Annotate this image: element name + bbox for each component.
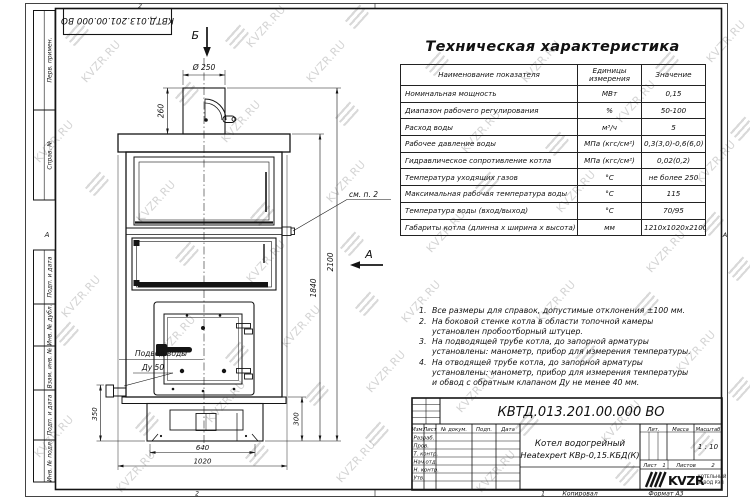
param-units: мм bbox=[578, 219, 642, 236]
param-units: % bbox=[578, 102, 642, 119]
dim-diameter: Ø 250 bbox=[192, 63, 216, 72]
param-value: не более 250 bbox=[642, 169, 706, 186]
note-number: 4. bbox=[419, 358, 428, 387]
left-margin-stamps: Перв. примен. Справ. № Подп. и дата Инв.… bbox=[34, 11, 56, 483]
notes-section: 1. Все размеры для справок, допустимые о… bbox=[419, 306, 691, 388]
note-item: 4. На отводящей трубе котла, до запорной… bbox=[419, 358, 691, 387]
param-value: 70/95 bbox=[642, 202, 706, 219]
view-label-b: Б bbox=[191, 29, 199, 42]
note-text: На подводящей трубе котла, до запорной а… bbox=[428, 337, 691, 357]
note-text: Все размеры для справок, допустимые откл… bbox=[428, 306, 691, 316]
top-doc-number-box: КВТД.013.201.00.000 ВО bbox=[61, 9, 174, 35]
doc-number: КВТД.013.201.00.000 ВО bbox=[497, 405, 664, 420]
dim-350: 350 bbox=[91, 407, 99, 421]
param-units: МВт bbox=[578, 86, 642, 103]
sheet-number: 1 bbox=[662, 463, 665, 469]
col-podp: Подп. bbox=[476, 427, 492, 433]
water-inlet-pipe bbox=[106, 385, 114, 397]
dim-2100: 2100 bbox=[326, 252, 335, 271]
stamp-podp-data-2: Подп. и дата bbox=[47, 394, 54, 435]
scale-label: Масштаб bbox=[696, 427, 721, 433]
table-row: Расход водым³/ч5 bbox=[401, 119, 706, 136]
note-item: 3. На подводящей трубе котла, до запорно… bbox=[419, 337, 691, 357]
param-value: 50-100 bbox=[642, 102, 706, 119]
param-name: Номинальная мощность bbox=[401, 86, 578, 103]
water-inlet-label-2: Ду 50 bbox=[141, 363, 164, 372]
mass-label: Масса bbox=[672, 427, 689, 433]
stamp-inv-podl: Инв. № подл. bbox=[47, 440, 54, 481]
table-row: Габариты котла (длинна х ширина х высота… bbox=[401, 219, 706, 236]
zone-mark-right: А bbox=[722, 231, 727, 239]
stamp-sprav-no: Справ. № bbox=[47, 140, 54, 169]
dim-1020: 1020 bbox=[194, 458, 212, 466]
view-label-a: А bbox=[364, 248, 373, 261]
table-row: Максимальная рабочая температура воды°С1… bbox=[401, 186, 706, 203]
table-row: Температура воды (вход/выход)°С70/95 bbox=[401, 202, 706, 219]
header-name: Наименование показателя bbox=[401, 65, 578, 86]
copied-label: Копировал bbox=[562, 491, 597, 498]
dim-300: 300 bbox=[293, 412, 301, 426]
kvzr-logo: KVZR КОТЕЛЬНЫЙ ЗАВОД РЭП bbox=[646, 472, 726, 488]
param-name: Температура воды (вход/выход) bbox=[401, 202, 578, 219]
format-label: Формат А3 bbox=[648, 491, 683, 498]
param-value: 0,02(0,2) bbox=[642, 152, 706, 169]
table-header-row: Наименование показателя Единицы измерени… bbox=[401, 65, 706, 86]
zone-mark-bottom-2: 1 bbox=[541, 491, 545, 498]
param-name: Рабочее давление воды bbox=[401, 136, 578, 153]
col-list: Лист bbox=[422, 427, 437, 433]
dim-640: 640 bbox=[196, 444, 210, 452]
param-name: Диапазон рабочего регулирования bbox=[401, 102, 578, 119]
table-row: Рабочее давление водыМПа (кгс/см²)0,3(3,… bbox=[401, 136, 706, 153]
stamp-vzam-inv: Взам. инв. № bbox=[47, 348, 54, 389]
param-units: МПа (кгс/см²) bbox=[578, 136, 642, 153]
table-row: Диапазон рабочего регулирования%50-100 bbox=[401, 102, 706, 119]
param-value: 0,3(3,0)-0,6(6,0) bbox=[642, 136, 706, 153]
scale-value: 1 : 10 bbox=[698, 443, 719, 451]
param-value: 0,15 bbox=[642, 86, 706, 103]
note-item: 2. На боковой стенке котла в области топ… bbox=[419, 317, 691, 337]
row-razrab: Разраб. bbox=[414, 435, 435, 441]
row-nachotd: Нач.отд. bbox=[414, 459, 438, 465]
sheets-label: Листов bbox=[675, 463, 696, 469]
note-number: 3. bbox=[419, 337, 428, 357]
spec-table: Наименование показателя Единицы измерени… bbox=[400, 64, 706, 236]
boiler-front-view bbox=[106, 58, 295, 448]
spec-section: Техническая характеристика Наименование … bbox=[400, 39, 705, 236]
param-name: Температура уходящих газов bbox=[401, 169, 578, 186]
dimensions: Ø 250 260 2100 1840 300 350 640 bbox=[91, 63, 341, 470]
callouts: Б А см. п. 2 Подвод воды Ду 50 bbox=[119, 27, 391, 386]
product-name-line1: Котел водогрейный bbox=[535, 439, 626, 449]
note-number: 1. bbox=[419, 306, 428, 316]
row-utv: Утв. bbox=[414, 475, 425, 481]
note-text: На отводящей трубе котла, до запорной ар… bbox=[428, 358, 691, 387]
header-units: Единицы измерения bbox=[578, 65, 642, 86]
param-value: 115 bbox=[642, 186, 706, 203]
spec-title: Техническая характеристика bbox=[400, 39, 705, 55]
product-name-line2: Heatexpert КВр-0,15.КБД(К) bbox=[520, 450, 639, 460]
col-dokum: № докум. bbox=[440, 427, 467, 433]
water-inlet-label-1: Подвод воды bbox=[135, 349, 187, 358]
param-name: Расход воды bbox=[401, 119, 578, 136]
param-name: Габариты котла (длинна х ширина х высота… bbox=[401, 219, 578, 236]
drawing-sheet: KVZR.RU KVZR.RU KVZR.RU KVZR.RU KVZR.RU … bbox=[0, 0, 750, 500]
dim-260: 260 bbox=[157, 104, 166, 119]
zone-mark-bottom: 2 bbox=[195, 491, 199, 498]
note-text: На боковой стенке котла в области топочн… bbox=[428, 317, 691, 337]
zone-mark-left: А bbox=[44, 231, 50, 239]
table-row: Номинальная мощностьМВт0,15 bbox=[401, 86, 706, 103]
title-block: КВТД.013.201.00.000 ВО Изм. Лист № докум… bbox=[412, 398, 727, 490]
row-prov: Пров. bbox=[414, 443, 429, 449]
kvzr-logo-sub2: ЗАВОД РЭП bbox=[698, 480, 724, 486]
param-units: °С bbox=[578, 186, 642, 203]
param-name: Максимальная рабочая температура воды bbox=[401, 186, 578, 203]
param-units: °С bbox=[578, 202, 642, 219]
stamp-perv-primen: Перв. примен. bbox=[47, 37, 54, 82]
stamp-inv-dubl: Инв. № дубл. bbox=[47, 304, 54, 345]
sheets-number: 2 bbox=[711, 463, 715, 469]
see-note-callout: см. п. 2 bbox=[349, 190, 378, 199]
sheet-label: Лист bbox=[642, 463, 657, 469]
stamp-podp-data-1: Подп. и дата bbox=[47, 256, 54, 297]
table-row: Гидравлическое сопротивление котлаМПа (к… bbox=[401, 152, 706, 169]
param-units: МПа (кгс/см²) bbox=[578, 152, 642, 169]
col-data: Дата bbox=[500, 427, 515, 433]
dim-1840: 1840 bbox=[309, 278, 318, 297]
param-value: 1210х1020х2100 bbox=[642, 219, 706, 236]
note-number: 2. bbox=[419, 317, 428, 337]
top-doc-number: КВТД.013.201.00.000 ВО bbox=[61, 15, 174, 25]
param-units: °С bbox=[578, 169, 642, 186]
lit-label: Лит. bbox=[647, 427, 660, 433]
header-value: Значение bbox=[642, 65, 706, 86]
note-item: 1. Все размеры для справок, допустимые о… bbox=[419, 306, 691, 316]
param-value: 5 bbox=[642, 119, 706, 136]
kvzr-logo-sub1: КОТЕЛЬНЫЙ bbox=[698, 473, 727, 480]
param-name: Гидравлическое сопротивление котла bbox=[401, 152, 578, 169]
row-tkontr: Т. контр. bbox=[414, 451, 439, 457]
param-units: м³/ч bbox=[578, 119, 642, 136]
sampling-nozzle bbox=[282, 227, 291, 236]
row-nkontr: Н. контр. bbox=[414, 467, 439, 473]
table-row: Температура уходящих газов°Сне более 250 bbox=[401, 169, 706, 186]
